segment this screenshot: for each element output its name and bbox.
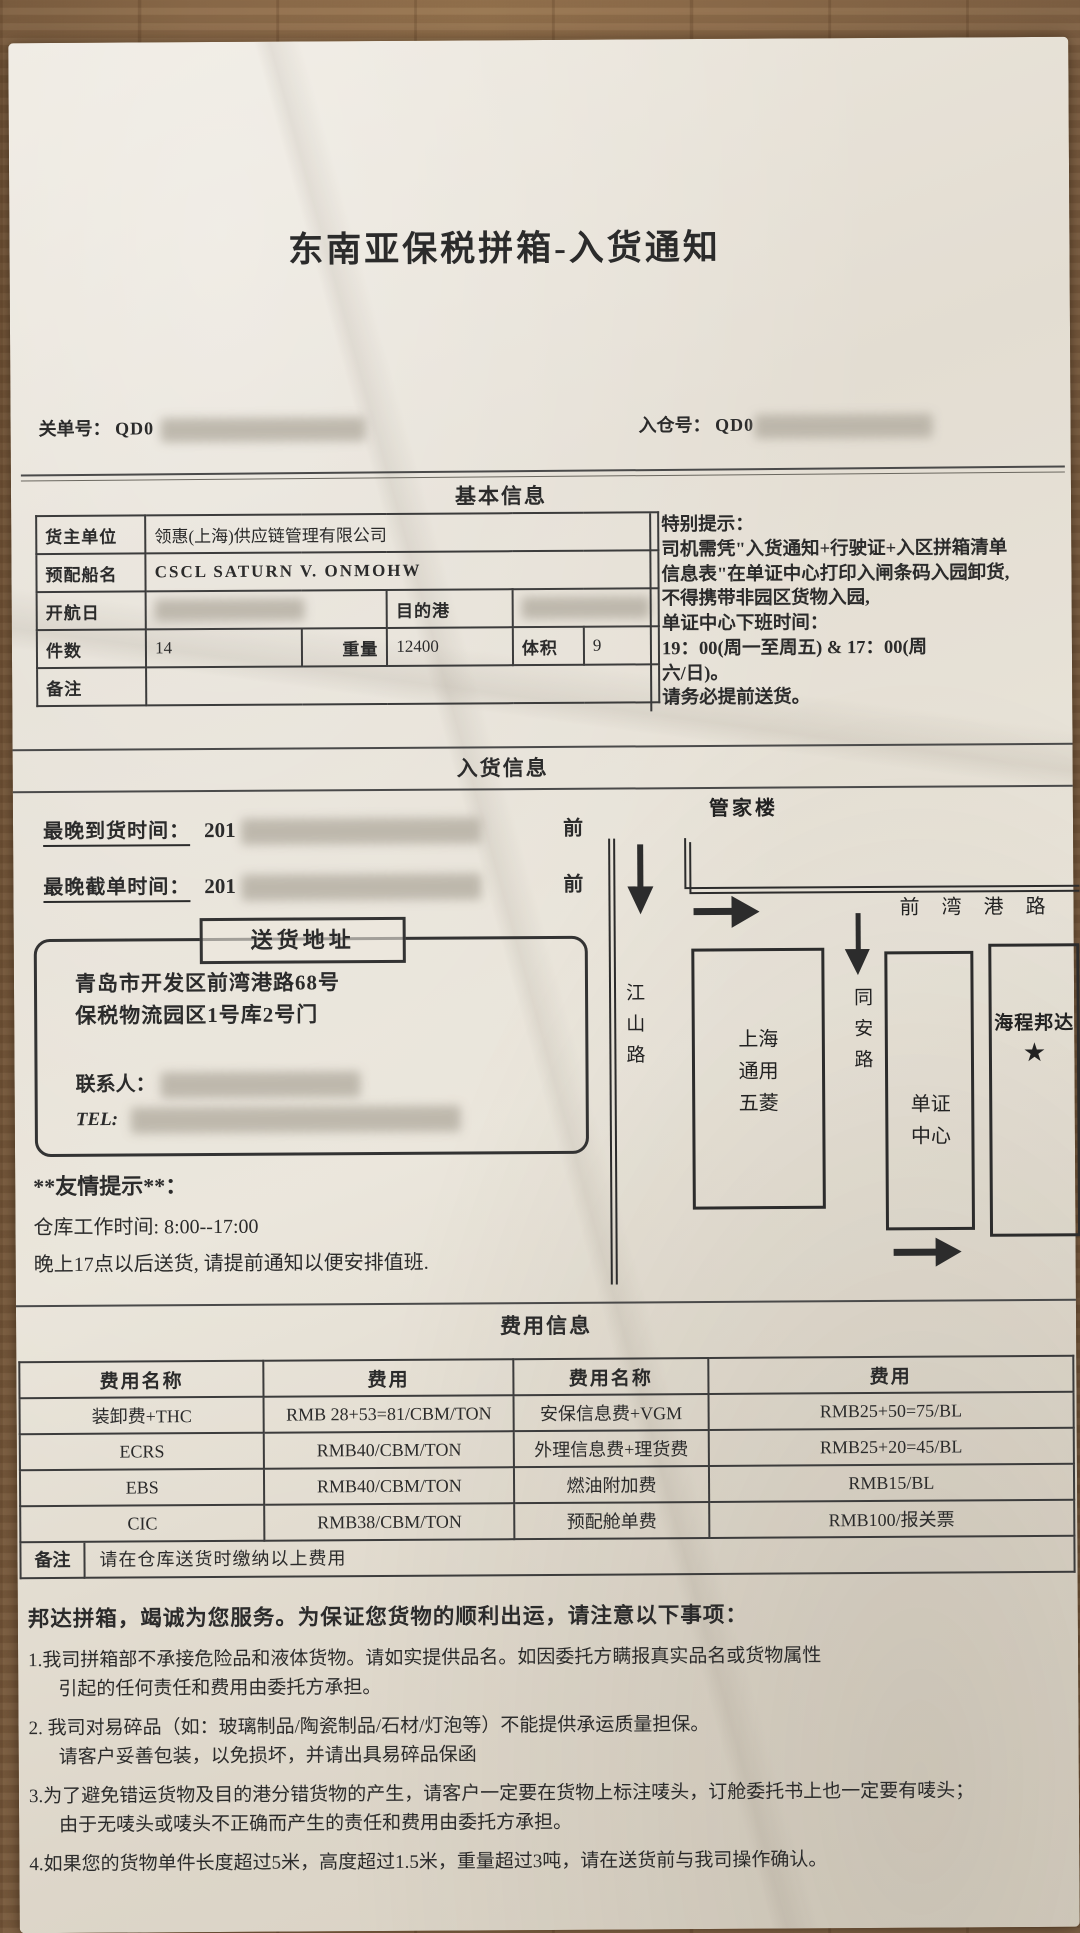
redacted-blur xyxy=(241,874,481,901)
arrow-down-icon xyxy=(856,913,861,951)
table-row: 备注 xyxy=(37,664,659,706)
arrow-right-icon xyxy=(731,896,759,928)
photo-background: { "title": "东南亚保税拼箱-入货通知", "refs": { "cu… xyxy=(0,0,1080,1920)
footer-notes: 邦达拼箱，竭诚为您服务。为保证您货物的顺利出运，请注意以下事项： 1.我司拼箱部… xyxy=(28,1597,1074,1891)
dest-port-value xyxy=(513,588,659,627)
fee-name: ECRS xyxy=(20,1433,265,1470)
map-label-tongan-road: 同安路 xyxy=(848,987,876,1080)
table-row: 预配船名 CSCL SATURN V. ONMOHW xyxy=(36,550,658,592)
contact-row: 联系人： xyxy=(75,1066,360,1099)
latest-cutoff-suffix: 前 xyxy=(563,868,583,897)
tips-line-1: 仓库工作时间: 8:00--17:00 xyxy=(33,1209,428,1240)
tel-row: TEL: xyxy=(76,1106,461,1134)
fee-table: 费用名称 费用 费用名称 费用 装卸费+THC RMB 28+53=81/CBM… xyxy=(18,1355,1075,1543)
weight-value: 12400 xyxy=(387,627,513,666)
divider xyxy=(16,1299,1076,1307)
tel-label: TEL: xyxy=(76,1109,118,1130)
road-corner-line xyxy=(685,836,1079,888)
latest-cutoff-row: 最晚截单时间：201 前 xyxy=(43,868,603,905)
fee-remark-row: 备注 请在仓库送货时缴纳以上费用 xyxy=(19,1537,1075,1579)
redacted-blur xyxy=(155,599,305,622)
paper-document: 东南亚保税拼箱-入货通知 关单号： QD0 入仓号： QD0 基本信息 货主单位… xyxy=(8,37,1080,1933)
road-jiangshan-line xyxy=(609,839,612,1285)
latest-arrival-label: 最晚到货时间： xyxy=(43,820,190,847)
fee-name: 外理信息费+理货费 xyxy=(514,1430,709,1467)
arrow-down-icon xyxy=(637,844,643,888)
arrow-down-icon xyxy=(627,886,653,914)
map-label-destination: 海程邦达 xyxy=(992,1008,1076,1036)
customs-no-value: QD0 xyxy=(115,418,154,438)
address-line-2: 保税物流园区1号库2号门 xyxy=(75,998,318,1029)
redacted-blur xyxy=(522,596,650,619)
sail-date-value xyxy=(146,590,387,629)
weight-label: 重量 xyxy=(302,628,387,667)
map-label-guanjialou: 管家楼 xyxy=(709,792,778,821)
table-row: 件数 14 重量 12400 体积 9 xyxy=(37,626,659,668)
redacted-blur xyxy=(161,1072,361,1099)
notes-intro: 邦达拼箱，竭诚为您服务。为保证您货物的顺利出运，请注意以下事项： xyxy=(28,1597,1072,1636)
road-jiangshan-line xyxy=(614,839,617,1285)
reference-numbers-row: 关单号： QD0 入仓号： QD0 xyxy=(39,409,1071,445)
fee-name: 预配舱单费 xyxy=(514,1502,709,1539)
latest-cutoff-value: 201 xyxy=(204,874,236,898)
warehouse-no-value: QD0 xyxy=(715,415,754,435)
customs-no-label: 关单号： xyxy=(39,419,111,439)
fee-amount: RMB 28+53=81/CBM/TON xyxy=(264,1395,514,1433)
map-label-saic-gm-wuling: 上海通用五菱 xyxy=(735,1024,782,1120)
redacted-blur xyxy=(240,818,480,845)
table-row: CIC RMB38/CBM/TON 预配舱单费 RMB100/报关票 xyxy=(20,1500,1074,1542)
section-inbound-info: 入货信息 xyxy=(13,749,993,785)
fee-remark-label: 备注 xyxy=(19,1543,85,1579)
table-row: 货主单位 领惠(上海)供应链管理有限公司 xyxy=(36,512,658,554)
section-basic-info: 基本信息 xyxy=(11,477,991,513)
note-item-2: 2. 我司对易碎品（如：玻璃制品/陶瓷制品/石材/灯泡等）不能提供承运质量担保。… xyxy=(28,1709,1072,1772)
remark-value xyxy=(146,664,659,705)
fee-header: 费用 xyxy=(264,1359,514,1397)
fee-amount: RMB38/CBM/TON xyxy=(265,1503,515,1541)
warehouse-no-label: 入仓号： xyxy=(639,415,711,435)
arrow-right-icon xyxy=(694,908,734,915)
fee-amount: RMB40/CBM/TON xyxy=(264,1431,514,1469)
fee-header: 费用名称 xyxy=(19,1361,264,1398)
latest-cutoff-label: 最晚截单时间： xyxy=(43,876,190,903)
tips-line-2: 晚上17点以后送货, 请提前通知以便安排值班. xyxy=(34,1246,429,1277)
destination-box-outline xyxy=(990,945,1080,1236)
latest-arrival-suffix: 前 xyxy=(563,812,583,841)
fee-header: 费用 xyxy=(708,1356,1074,1394)
latest-arrival-row: 最晚到货时间：201 前 xyxy=(43,812,603,849)
fee-name: CIC xyxy=(20,1505,265,1542)
owner-label: 货主单位 xyxy=(36,515,145,554)
owner-value: 领惠(上海)供应链管理有限公司 xyxy=(145,512,658,553)
arrow-right-icon xyxy=(936,1237,962,1266)
redacted-blur xyxy=(161,417,366,442)
dest-port-label: 目的港 xyxy=(387,589,513,628)
map-label-qianwangang-road: 前湾港路 xyxy=(899,890,1067,920)
note-item-3: 3.为了避免错运货物及目的港分错货物的产生，请客户一定要在货物上标注唛头，订舱委… xyxy=(29,1777,1073,1840)
redacted-blur xyxy=(755,413,933,438)
note-item-1: 1.我司拼箱部不承接危险品和液体货物。请如实提供品名。如因委托方瞒报真实品名或货… xyxy=(28,1641,1072,1704)
pieces-label: 件数 xyxy=(37,629,146,668)
fee-amount: RMB15/BL xyxy=(709,1464,1075,1502)
section-fee-info: 费用信息 xyxy=(16,1307,1076,1343)
fee-amount: RMB25+20=45/BL xyxy=(708,1428,1074,1466)
vessel-label: 预配船名 xyxy=(36,553,145,592)
vessel-value: CSCL SATURN V. ONMOHW xyxy=(146,550,659,591)
volume-value: 9 xyxy=(584,626,659,664)
fee-name: 装卸费+THC xyxy=(20,1397,265,1434)
map-label-jiangshan-road: 江山路 xyxy=(620,982,648,1075)
basic-info-table: 货主单位 领惠(上海)供应链管理有限公司 预配船名 CSCL SATURN V.… xyxy=(35,511,660,707)
arrow-down-icon xyxy=(845,949,870,975)
special-notice: 特别提示： 司机需凭"入货通知+行驶证+入区拼箱清单 信息表"在单证中心打印入闸… xyxy=(649,511,1076,712)
fee-name: 燃油附加费 xyxy=(514,1466,709,1503)
route-map: 管家楼 前湾港路 江山路 上海通用五菱 同安路 单证中心 海程邦达 ★ xyxy=(597,790,1080,1285)
friendly-tips: **友情提示**： 仓库工作时间: 8:00--17:00 晚上17点以后送货,… xyxy=(33,1167,429,1285)
doc-title: 东南亚保税拼箱-入货通知 xyxy=(9,217,999,274)
sail-date-label: 开航日 xyxy=(37,591,146,630)
map-label-docs-center: 单证中心 xyxy=(908,1088,954,1152)
fee-name: 安保信息费+VGM xyxy=(514,1394,709,1431)
fee-amount: RMB40/CBM/TON xyxy=(264,1467,514,1505)
note-item-4: 4.如果您的货物单件长度超过5米，高度超过1.5米，重量超过3吨，请在送货前与我… xyxy=(29,1845,1073,1880)
fee-name: EBS xyxy=(20,1469,265,1506)
delivery-address-box: 青岛市开发区前湾港路68号 保税物流园区1号库2号门 联系人： TEL: xyxy=(34,936,589,1157)
warehouse-no-group: 入仓号： QD0 xyxy=(638,410,932,440)
table-row: 开航日 目的港 xyxy=(37,588,659,630)
redacted-blur xyxy=(131,1106,461,1134)
volume-label: 体积 xyxy=(513,627,584,665)
fee-amount: RMB100/报关票 xyxy=(709,1500,1075,1538)
arrow-right-icon xyxy=(894,1249,938,1256)
contact-label: 联系人： xyxy=(76,1073,156,1095)
remark-label: 备注 xyxy=(37,667,146,706)
fee-header: 费用名称 xyxy=(513,1358,708,1395)
fee-remark-value: 请在仓库送货时缴纳以上费用 xyxy=(85,1537,1075,1579)
latest-arrival-value: 201 xyxy=(204,818,236,842)
fee-amount: RMB25+50=75/BL xyxy=(708,1392,1074,1430)
star-icon: ★ xyxy=(992,1038,1076,1069)
pieces-value: 14 xyxy=(146,628,302,667)
address-line-1: 青岛市开发区前湾港路68号 xyxy=(75,966,340,998)
tips-title: **友情提示**： xyxy=(33,1167,428,1201)
delivery-address-box-label: 送货地址 xyxy=(200,917,406,964)
